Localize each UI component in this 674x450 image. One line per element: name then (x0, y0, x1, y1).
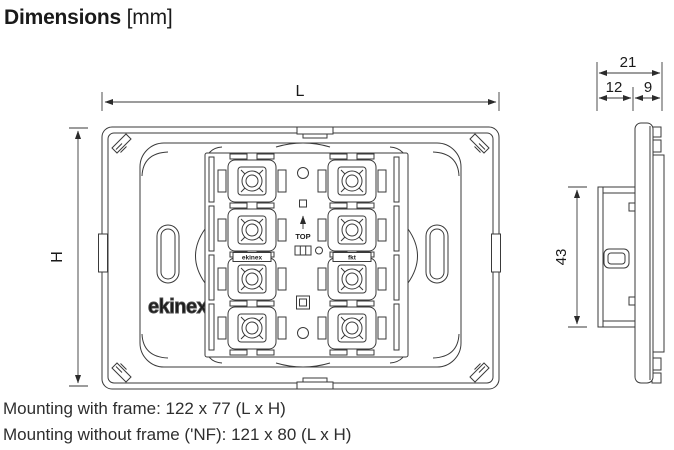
note-without-frame: Mounting without frame ('NF): 121 x 80 (… (3, 422, 351, 448)
left-edge-clip (99, 234, 108, 272)
dim-extension-lines (69, 128, 88, 386)
module-label-left: ekinex (242, 255, 263, 262)
fixing-hole (298, 328, 309, 339)
mounting-notes: Mounting with frame: 122 x 77 (L x H) Mo… (3, 396, 351, 448)
dim-label-H: H (49, 251, 66, 263)
mounting-slot-right (426, 225, 448, 283)
side-view: 21 12 9 43 (553, 54, 664, 383)
dimension-43 (568, 187, 587, 327)
note-with-frame: Mounting with frame: 122 x 77 (L x H) (3, 396, 351, 422)
switch-module: TOP ekinex fkt (196, 153, 418, 357)
dim-label-43: 43 (553, 249, 570, 266)
technical-drawing: L H (0, 0, 674, 450)
dim-label-21: 21 (620, 54, 637, 71)
top-tab (297, 127, 333, 134)
frame-back-layer (652, 127, 664, 383)
right-edge-clip (492, 234, 501, 272)
dimension-height (69, 128, 88, 386)
fixing-hole (298, 168, 309, 179)
dim-label-9: 9 (644, 79, 652, 96)
dim-extension-lines (568, 187, 587, 327)
side-profile (598, 123, 664, 383)
mounting-slot-left (157, 225, 179, 283)
flush-mechanism-box (598, 187, 636, 327)
brand-logo: ekinex (148, 296, 208, 318)
bottom-tab (297, 382, 333, 389)
dim-label-12: 12 (606, 79, 623, 96)
module-label-right: fkt (348, 255, 357, 262)
dim-label-L: L (296, 83, 305, 100)
top-marking-label: TOP (295, 232, 310, 241)
front-view: L H (49, 83, 501, 389)
front-plate-profile (635, 123, 653, 383)
dimension-drawing-page: Dimensions [mm] (0, 0, 674, 450)
